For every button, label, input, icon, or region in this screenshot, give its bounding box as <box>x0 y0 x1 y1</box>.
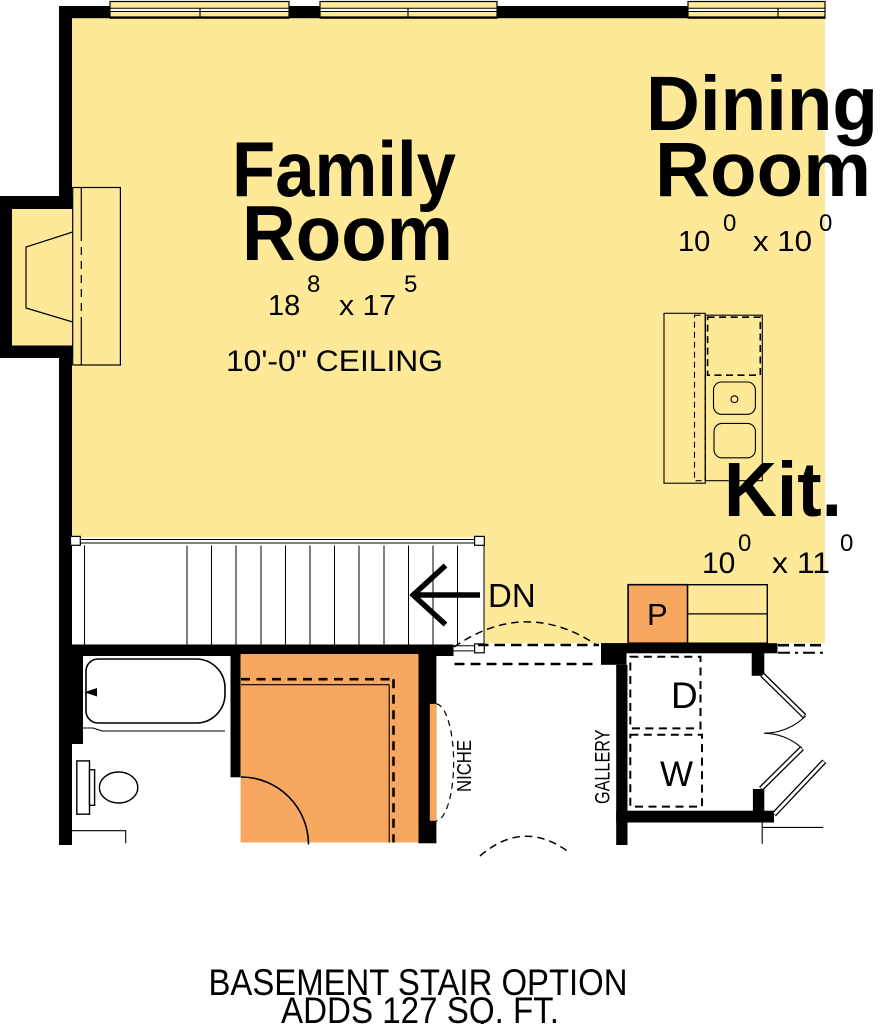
svg-text:10: 10 <box>702 547 735 580</box>
svg-text:5: 5 <box>404 271 417 298</box>
svg-text:x 11: x 11 <box>772 547 830 580</box>
svg-text:GALLERY: GALLERY <box>591 730 615 805</box>
svg-text:0: 0 <box>840 530 853 557</box>
svg-text:Room: Room <box>242 189 453 277</box>
svg-text:18: 18 <box>268 290 300 322</box>
svg-text:ADDS 127 SQ. FT.: ADDS 127 SQ. FT. <box>281 990 559 1024</box>
svg-text:x 17: x 17 <box>339 290 396 322</box>
svg-text:D: D <box>671 675 698 716</box>
svg-text:Kit.: Kit. <box>724 447 842 533</box>
svg-text:0: 0 <box>723 210 736 237</box>
svg-text:10: 10 <box>678 226 710 258</box>
svg-text:P: P <box>647 597 668 632</box>
svg-text:Room: Room <box>655 127 871 213</box>
svg-text:0: 0 <box>819 210 832 237</box>
svg-text:8: 8 <box>307 271 320 298</box>
svg-text:W: W <box>660 755 693 794</box>
svg-text:x 10: x 10 <box>753 226 812 258</box>
svg-text:NICHE: NICHE <box>454 740 476 792</box>
svg-text:10'-0" CEILING: 10'-0" CEILING <box>226 345 443 378</box>
svg-text:DN: DN <box>488 577 536 614</box>
svg-text:0: 0 <box>738 530 751 557</box>
